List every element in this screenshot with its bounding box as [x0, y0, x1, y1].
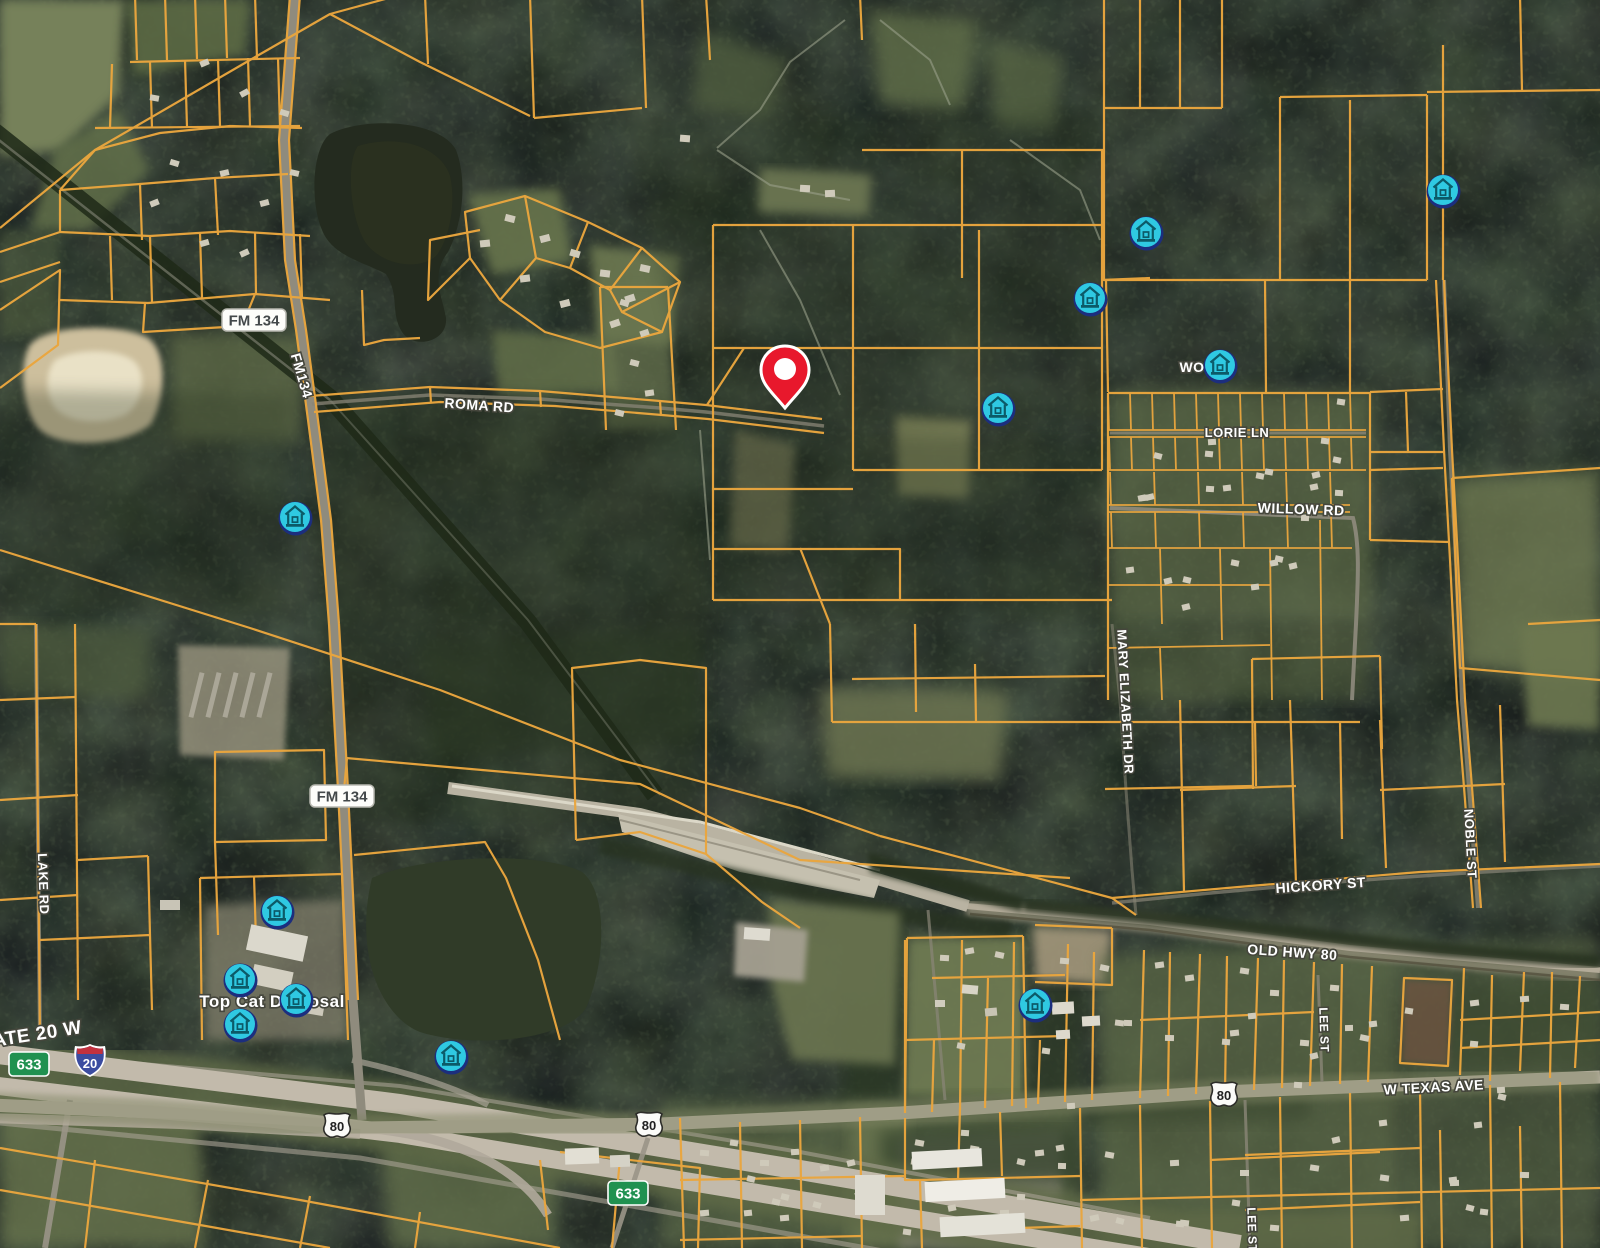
svg-text:WILLOW RD: WILLOW RD [1257, 499, 1344, 518]
svg-text:LEE ST: LEE ST [1316, 1007, 1332, 1053]
svg-text:LAKE RD: LAKE RD [35, 853, 52, 915]
svg-text:WO: WO [1179, 359, 1204, 375]
svg-text:LEE ST: LEE ST [1244, 1207, 1260, 1248]
svg-text:80: 80 [1217, 1088, 1231, 1103]
svg-text:633: 633 [615, 1186, 640, 1203]
svg-text:80: 80 [330, 1119, 344, 1134]
svg-text:LORIE LN: LORIE LN [1205, 425, 1270, 440]
svg-text:FM 134: FM 134 [229, 313, 281, 330]
svg-text:80: 80 [642, 1118, 656, 1133]
svg-text:FM 134: FM 134 [317, 789, 369, 806]
svg-text:20: 20 [83, 1056, 97, 1071]
svg-text:Top Cat Disposal: Top Cat Disposal [199, 992, 345, 1011]
svg-text:633: 633 [16, 1057, 41, 1074]
